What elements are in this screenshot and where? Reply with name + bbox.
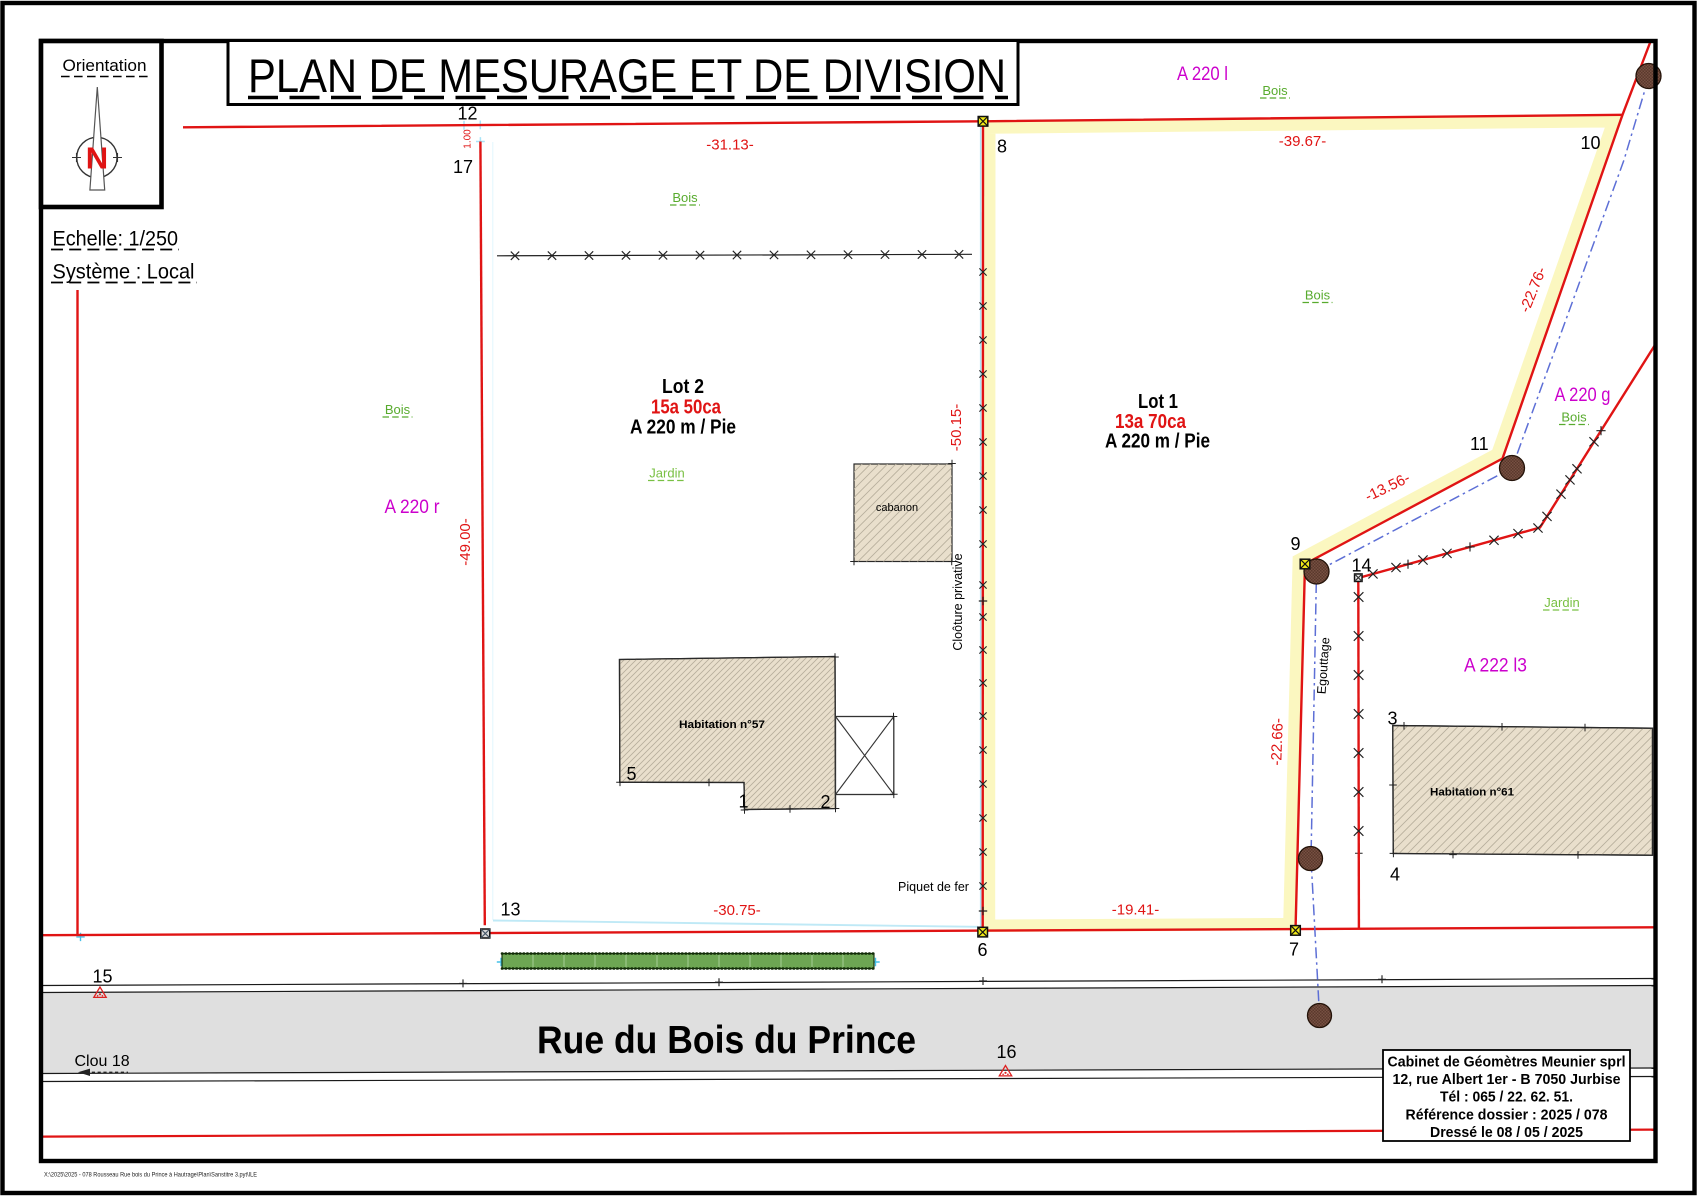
svg-text:Orientation: Orientation [63,57,147,75]
svg-text:A 220 g: A 220 g [1555,384,1611,406]
svg-text:9: 9 [1291,534,1301,554]
svg-text:17: 17 [453,157,473,177]
svg-text:-39.67-: -39.67- [1279,133,1327,150]
svg-text:Bois: Bois [1561,410,1587,425]
svg-text:Piquet de fer: Piquet de fer [898,880,969,894]
svg-text:Système : Local: Système : Local [53,261,195,284]
svg-text:-50.15-: -50.15- [948,404,965,452]
svg-text:A 220 m / Pie: A 220 m / Pie [1105,431,1210,453]
svg-text:Habitation n°61: Habitation n°61 [1430,787,1514,799]
svg-text:4: 4 [1390,865,1400,885]
svg-text:A 220 m / Pie: A 220 m / Pie [630,417,736,439]
svg-text:Habitation n°57: Habitation n°57 [679,719,765,731]
svg-text:8: 8 [997,137,1007,157]
svg-text:cabanon: cabanon [876,502,918,514]
svg-text:10: 10 [1581,133,1601,153]
svg-text:Cabinet de Géomètres Meunier s: Cabinet de Géomètres Meunier sprl [1388,1055,1626,1071]
svg-text:2: 2 [821,792,831,812]
svg-text:Bois: Bois [385,402,411,417]
svg-text:-31.13-: -31.13- [706,137,754,154]
svg-text:Dressé le 08 / 05 / 2025: Dressé le 08 / 05 / 2025 [1430,1125,1583,1141]
svg-text:N: N [86,141,108,176]
svg-text:-22.66-: -22.66- [1268,718,1287,766]
svg-text:-19.41-: -19.41- [1112,902,1160,919]
svg-text:Clou 18: Clou 18 [75,1053,130,1070]
svg-text:Rue du Bois du Prince: Rue du Bois du Prince [537,1019,916,1062]
svg-text:7: 7 [1289,940,1299,960]
svg-text:-49.00-: -49.00- [457,518,474,566]
svg-text:-30.75-: -30.75- [713,902,761,919]
svg-text:3: 3 [1388,709,1398,729]
svg-text:Echelle: 1/250: Echelle: 1/250 [53,228,179,251]
svg-text:5: 5 [627,764,637,784]
svg-text:11: 11 [1470,434,1489,454]
svg-text:Bois: Bois [672,190,698,205]
svg-text:12, rue Albert 1er - B 7050 Ju: 12, rue Albert 1er - B 7050 Jurbise [1393,1072,1621,1088]
svg-text:Jardin: Jardin [1544,595,1579,610]
svg-text:Cloôture privative: Cloôture privative [951,553,965,650]
svg-text:14: 14 [1352,556,1372,576]
svg-text:Référence dossier : 2025 / 078: Référence dossier : 2025 / 078 [1406,1108,1608,1124]
svg-text:Tél : 065 / 22. 62. 51.: Tél : 065 / 22. 62. 51. [1440,1090,1573,1106]
svg-text:Jardin: Jardin [649,466,684,481]
svg-text:Bois: Bois [1305,288,1331,303]
svg-text:13: 13 [501,900,521,920]
svg-text:15a 50ca: 15a 50ca [651,397,722,419]
svg-text:Bois: Bois [1262,83,1288,98]
svg-text:15: 15 [93,967,113,987]
svg-text:12: 12 [457,104,477,124]
svg-text:6: 6 [977,940,987,960]
svg-text:PLAN DE MESURAGE ET DE DIVISIO: PLAN DE MESURAGE ET DE DIVISION [248,49,1006,102]
svg-text:1: 1 [739,792,749,812]
svg-text:A 220 l: A 220 l [1177,63,1228,85]
svg-text:X:\2025\2025 - 078 Rousseau Ru: X:\2025\2025 - 078 Rousseau Rue bois du … [44,1172,257,1179]
svg-text:A 222 l3: A 222 l3 [1464,655,1527,677]
svg-text:Lot 2: Lot 2 [662,376,704,398]
svg-text:1.00: 1.00 [462,129,473,149]
svg-text:16: 16 [997,1042,1017,1062]
svg-text:A 220 r: A 220 r [385,496,440,518]
svg-text:Lot 1: Lot 1 [1138,391,1178,413]
